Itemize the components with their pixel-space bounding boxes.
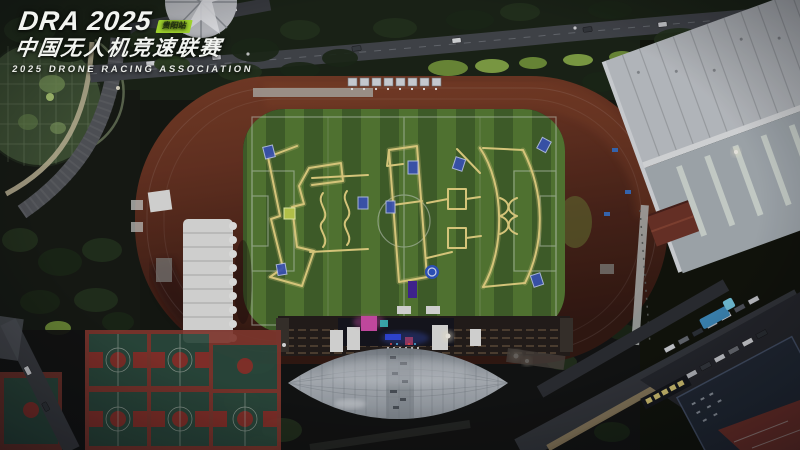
event-logo: DRA 2025 贵阳站 中国无人机竞速联赛 2025 DRONE RACING… [11, 8, 262, 75]
aerial-photo: DRA 2025 贵阳站 中国无人机竞速联赛 2025 DRONE RACING… [0, 0, 800, 450]
logo-subtitle-cn: 中国无人机竞速联赛 [13, 37, 258, 61]
logo-subtitle-en: 2025 DRONE RACING ASSOCIATION [11, 64, 254, 75]
logo-title: DRA 2025 [17, 8, 154, 35]
logo-station-badge: 贵阳站 [156, 20, 193, 33]
